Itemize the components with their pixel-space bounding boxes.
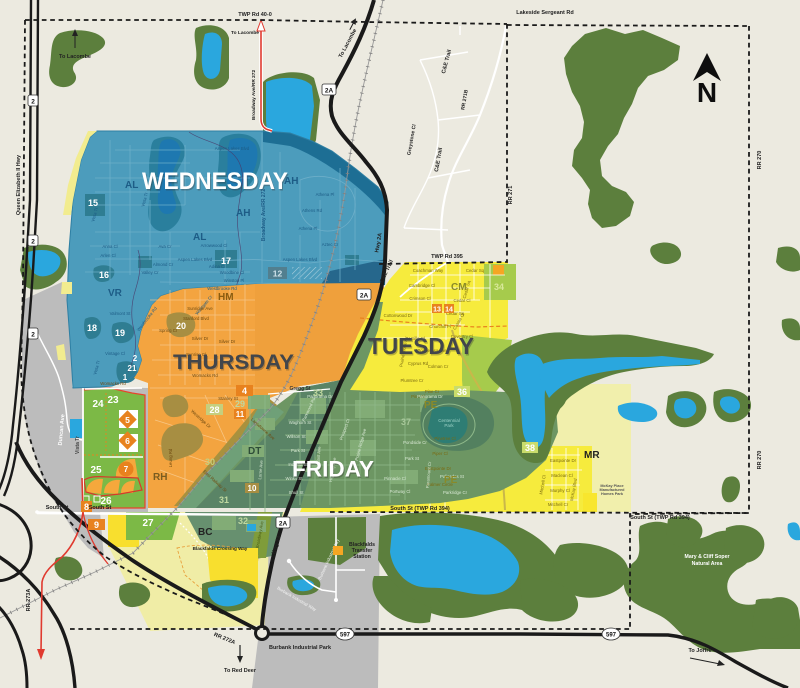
svg-text:Silver Dr: Silver Dr — [219, 339, 236, 344]
svg-text:19: 19 — [115, 328, 125, 338]
svg-text:9: 9 — [94, 520, 99, 530]
svg-text:South St (TWP Rd 394): South St (TWP Rd 394) — [390, 506, 450, 512]
svg-text:Pinnacle Cl: Pinnacle Cl — [384, 476, 406, 481]
svg-text:Stanford Blvd: Stanford Blvd — [183, 316, 209, 321]
svg-text:28: 28 — [209, 405, 219, 415]
svg-text:Queen Elizabeth II Hwy: Queen Elizabeth II Hwy — [16, 154, 22, 215]
svg-text:Broadway Ave/RR 272: Broadway Ave/RR 272 — [251, 70, 257, 121]
svg-text:Cottonwood Dr: Cottonwood Dr — [384, 313, 413, 318]
svg-text:12: 12 — [273, 269, 283, 279]
svg-text:South St (TWP Rd 394): South St (TWP Rd 394) — [630, 515, 690, 521]
svg-text:Eastpointe Dr: Eastpointe Dr — [550, 458, 577, 463]
svg-text:Silver Dr: Silver Dr — [192, 336, 209, 341]
svg-text:To Joffre: To Joffre — [688, 648, 711, 654]
svg-text:Vista Tr: Vista Tr — [75, 436, 81, 454]
svg-text:Aspen Lakes Blvd: Aspen Lakes Blvd — [283, 257, 318, 262]
svg-text:37: 37 — [401, 417, 411, 427]
svg-text:21: 21 — [128, 364, 137, 373]
svg-text:25: 25 — [90, 465, 102, 476]
svg-text:Maclean Cl: Maclean Cl — [551, 473, 573, 478]
svg-text:Woodbine Cl: Woodbine Cl — [220, 270, 245, 275]
svg-text:CM: CM — [451, 282, 467, 293]
svg-text:4: 4 — [242, 386, 247, 396]
svg-text:24: 24 — [92, 399, 104, 410]
svg-text:HM: HM — [218, 292, 234, 303]
svg-text:Athena Pl: Athena Pl — [299, 226, 318, 231]
svg-text:23: 23 — [107, 395, 119, 406]
svg-text:N: N — [697, 77, 717, 108]
svg-text:2: 2 — [31, 332, 35, 339]
svg-text:Arlen Cl: Arlen Cl — [100, 253, 115, 258]
svg-text:Parkridge Cr: Parkridge Cr — [443, 490, 468, 495]
svg-text:33: 33 — [313, 388, 323, 398]
svg-text:27: 27 — [142, 518, 154, 529]
svg-text:Westbrooke Rd: Westbrooke Rd — [207, 286, 237, 291]
svg-text:Anna Cl: Anna Cl — [102, 244, 117, 249]
svg-text:South St: South St — [46, 505, 69, 511]
svg-text:Athens Rd: Athens Rd — [302, 208, 323, 213]
svg-text:Lakeside Sergeant Rd: Lakeside Sergeant Rd — [516, 10, 573, 16]
svg-text:Pinetree Cl: Pinetree Cl — [434, 436, 455, 441]
svg-text:AL: AL — [193, 232, 206, 243]
svg-text:30: 30 — [205, 457, 215, 467]
svg-text:2A: 2A — [325, 88, 334, 95]
svg-text:Valley Cr: Valley Cr — [141, 270, 159, 275]
svg-text:Cedar Cl: Cedar Cl — [454, 298, 471, 303]
svg-text:AL: AL — [125, 180, 138, 191]
svg-text:Cedar Sq: Cedar Sq — [466, 268, 485, 273]
svg-text:BC: BC — [198, 527, 212, 538]
svg-text:2: 2 — [31, 99, 35, 106]
svg-text:2: 2 — [133, 354, 138, 363]
svg-text:31: 31 — [219, 495, 229, 505]
svg-text:2A: 2A — [279, 521, 288, 528]
svg-text:Aztec Cr: Aztec Cr — [322, 242, 339, 247]
svg-text:Winston Pl: Winston Pl — [224, 278, 245, 283]
svg-text:Mitchell Cr: Mitchell Cr — [548, 502, 569, 507]
svg-text:Mary & Cliff Soper: Mary & Cliff Soper — [685, 554, 730, 560]
svg-text:Homes Park: Homes Park — [601, 492, 624, 496]
svg-text:Valmont St: Valmont St — [110, 311, 132, 316]
svg-text:To Lacombe: To Lacombe — [231, 30, 259, 36]
svg-text:Ava Cr: Ava Cr — [158, 244, 172, 249]
svg-text:Blackfalds Crossing Way: Blackfalds Crossing Way — [193, 546, 248, 551]
svg-text:Park St: Park St — [405, 456, 420, 461]
svg-text:29: 29 — [235, 399, 245, 409]
svg-text:AH: AH — [284, 176, 298, 187]
svg-text:13: 13 — [433, 307, 441, 314]
svg-text:Murphy Cl: Murphy Cl — [550, 488, 570, 493]
svg-text:20: 20 — [176, 321, 186, 331]
svg-text:15: 15 — [88, 198, 98, 208]
svg-text:FRIDAY: FRIDAY — [292, 457, 374, 482]
svg-text:10: 10 — [248, 484, 257, 493]
svg-text:PE: PE — [444, 475, 458, 486]
svg-text:RR 270: RR 270 — [757, 451, 763, 470]
svg-text:Station: Station — [353, 554, 371, 560]
svg-text:Willson St: Willson St — [286, 434, 306, 439]
svg-text:Cambridge Cl: Cambridge Cl — [409, 283, 435, 288]
svg-text:Leung Rd: Leung Rd — [168, 448, 173, 467]
svg-text:Vintage Cl: Vintage Cl — [105, 351, 125, 356]
svg-text:2: 2 — [31, 239, 35, 246]
svg-text:7: 7 — [124, 465, 129, 474]
svg-text:To Lacombe: To Lacombe — [59, 54, 91, 60]
svg-text:32: 32 — [238, 516, 248, 526]
svg-text:Aspen Lakes Blvd: Aspen Lakes Blvd — [215, 146, 250, 151]
svg-text:Plumtree Cr: Plumtree Cr — [401, 378, 424, 383]
svg-text:TUESDAY: TUESDAY — [368, 333, 474, 359]
svg-text:5: 5 — [125, 415, 130, 425]
svg-text:South St: South St — [89, 505, 112, 511]
svg-text:RR 273A: RR 273A — [26, 589, 32, 612]
svg-text:TWP Rd 40-0: TWP Rd 40-0 — [238, 12, 272, 18]
svg-text:11: 11 — [236, 410, 245, 419]
svg-text:Crimson Cl: Crimson Cl — [409, 296, 430, 301]
svg-text:6: 6 — [125, 436, 130, 446]
svg-text:2A: 2A — [360, 293, 369, 300]
svg-text:DT: DT — [248, 446, 261, 457]
svg-text:34: 34 — [494, 282, 504, 292]
svg-text:597: 597 — [340, 633, 351, 639]
svg-text:Burbank Industrial Park: Burbank Industrial Park — [269, 645, 332, 651]
svg-text:Natural Area: Natural Area — [692, 561, 723, 567]
svg-text:38: 38 — [525, 443, 535, 453]
svg-text:Coachman Way: Coachman Way — [413, 268, 444, 273]
svg-text:Piper Cl: Piper Cl — [432, 451, 447, 456]
svg-text:Athena Pl: Athena Pl — [316, 192, 335, 197]
svg-text:17: 17 — [221, 256, 231, 266]
svg-text:PE: PE — [424, 400, 438, 411]
svg-text:TWP Rd 395: TWP Rd 395 — [431, 254, 463, 260]
svg-text:Gregg St: Gregg St — [289, 386, 310, 392]
svg-text:AH: AH — [236, 208, 250, 219]
svg-text:Arrowwood Cl: Arrowwood Cl — [201, 243, 228, 248]
svg-text:Sunridge Ave: Sunridge Ave — [187, 306, 213, 311]
svg-text:Park St: Park St — [291, 448, 306, 453]
svg-text:RR 271: RR 271 — [508, 186, 514, 205]
svg-text:14: 14 — [445, 307, 453, 314]
svg-text:Churchill Pl: Churchill Pl — [429, 324, 451, 329]
svg-text:Park: Park — [444, 423, 454, 428]
svg-text:Panorama Dr: Panorama Dr — [417, 394, 443, 399]
svg-text:Colman Cr: Colman Cr — [428, 364, 449, 369]
svg-text:1: 1 — [123, 373, 128, 382]
svg-text:RR 270: RR 270 — [757, 151, 763, 170]
svg-text:Aspen Lakes Blvd: Aspen Lakes Blvd — [178, 257, 213, 262]
svg-text:Pondside Cr: Pondside Cr — [403, 440, 427, 445]
svg-text:Almond Cr: Almond Cr — [153, 262, 174, 267]
svg-text:THURSDAY: THURSDAY — [173, 350, 294, 374]
svg-text:36: 36 — [457, 387, 467, 397]
svg-text:RH: RH — [153, 472, 167, 483]
svg-text:Portway Cl: Portway Cl — [390, 489, 411, 494]
svg-text:18: 18 — [87, 323, 97, 333]
svg-text:597: 597 — [606, 633, 617, 639]
svg-text:VR: VR — [108, 288, 123, 299]
svg-text:To Red Deer: To Red Deer — [224, 668, 257, 674]
svg-text:16: 16 — [99, 270, 109, 280]
svg-text:Spring Cl: Spring Cl — [159, 328, 177, 333]
svg-text:Cyprus Rd: Cyprus Rd — [408, 361, 429, 366]
svg-text:Broadway Ave/RR 272: Broadway Ave/RR 272 — [261, 189, 267, 242]
svg-text:MR: MR — [584, 450, 600, 461]
svg-text:Shull St: Shull St — [289, 490, 305, 495]
